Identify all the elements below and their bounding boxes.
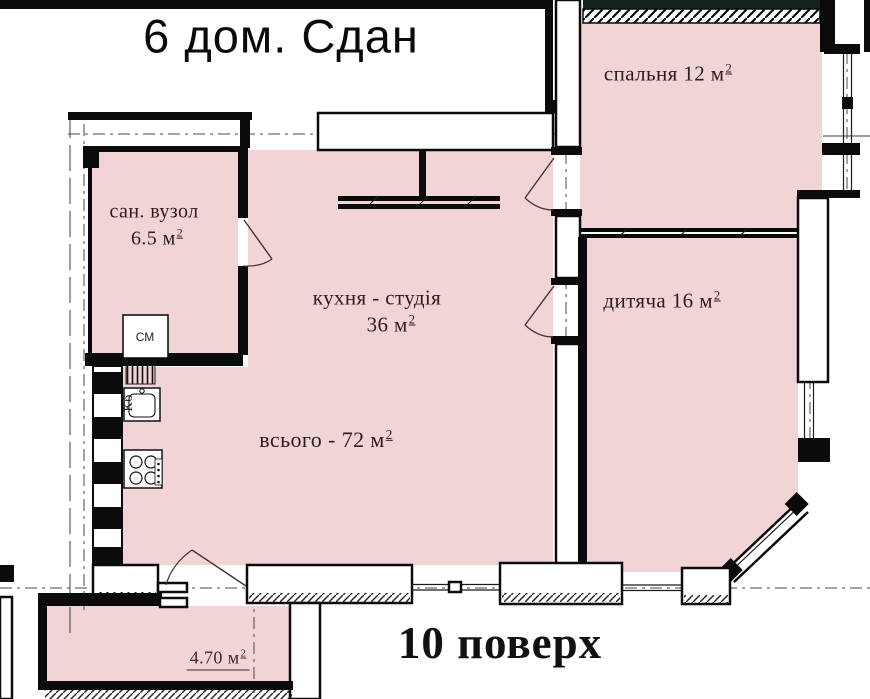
plan-title-text: 6 дом. Сдан: [143, 10, 419, 63]
plan-title: 6 дом. Сдан: [143, 9, 419, 64]
room-kids: [587, 237, 798, 572]
floorplan-drawing: [0, 0, 870, 699]
inner-wall-vertical: [551, 0, 582, 565]
title-box-wall: [545, 0, 553, 104]
label-bedroom: спальня 12 м2: [604, 62, 732, 87]
top-dark-strip: [583, 0, 820, 9]
label-bathroom-name: сан. вузол: [110, 201, 199, 224]
label-kitchen-area: 36 м2: [367, 313, 416, 338]
bedroom-hatched-wall: [583, 9, 820, 23]
hall-wall: [318, 113, 553, 150]
vent-shaft-strip: [93, 366, 122, 565]
label-kids-room: дитяча 16 м2: [603, 289, 720, 314]
label-total-area: всього - 72 м2: [259, 427, 392, 453]
kids-right-wall: [798, 198, 828, 382]
room-bedroom: [580, 23, 822, 228]
sink-label: Кб: [121, 394, 137, 411]
towel-rail: [126, 358, 155, 384]
bathroom-left-wall: [88, 150, 92, 355]
wall-stub: [419, 150, 426, 196]
balcony-door-threshold: [158, 583, 187, 592]
label-bathroom-area: 6.5 м2: [131, 226, 183, 251]
washing-machine-label: СМ: [136, 330, 155, 344]
label-kitchen-name: кухня - студія: [313, 286, 441, 311]
kids-left-wall: [578, 237, 587, 572]
label-balcony-area: 4.70 м2: [187, 648, 250, 671]
floor-label: 10 поверх: [398, 617, 602, 669]
balcony-side-wall: [290, 603, 320, 699]
floorplan-page: 6 дом. Сдан сан. вузол 6.5 м2 кухня - ст…: [0, 0, 870, 699]
stove-icon: [124, 450, 162, 488]
